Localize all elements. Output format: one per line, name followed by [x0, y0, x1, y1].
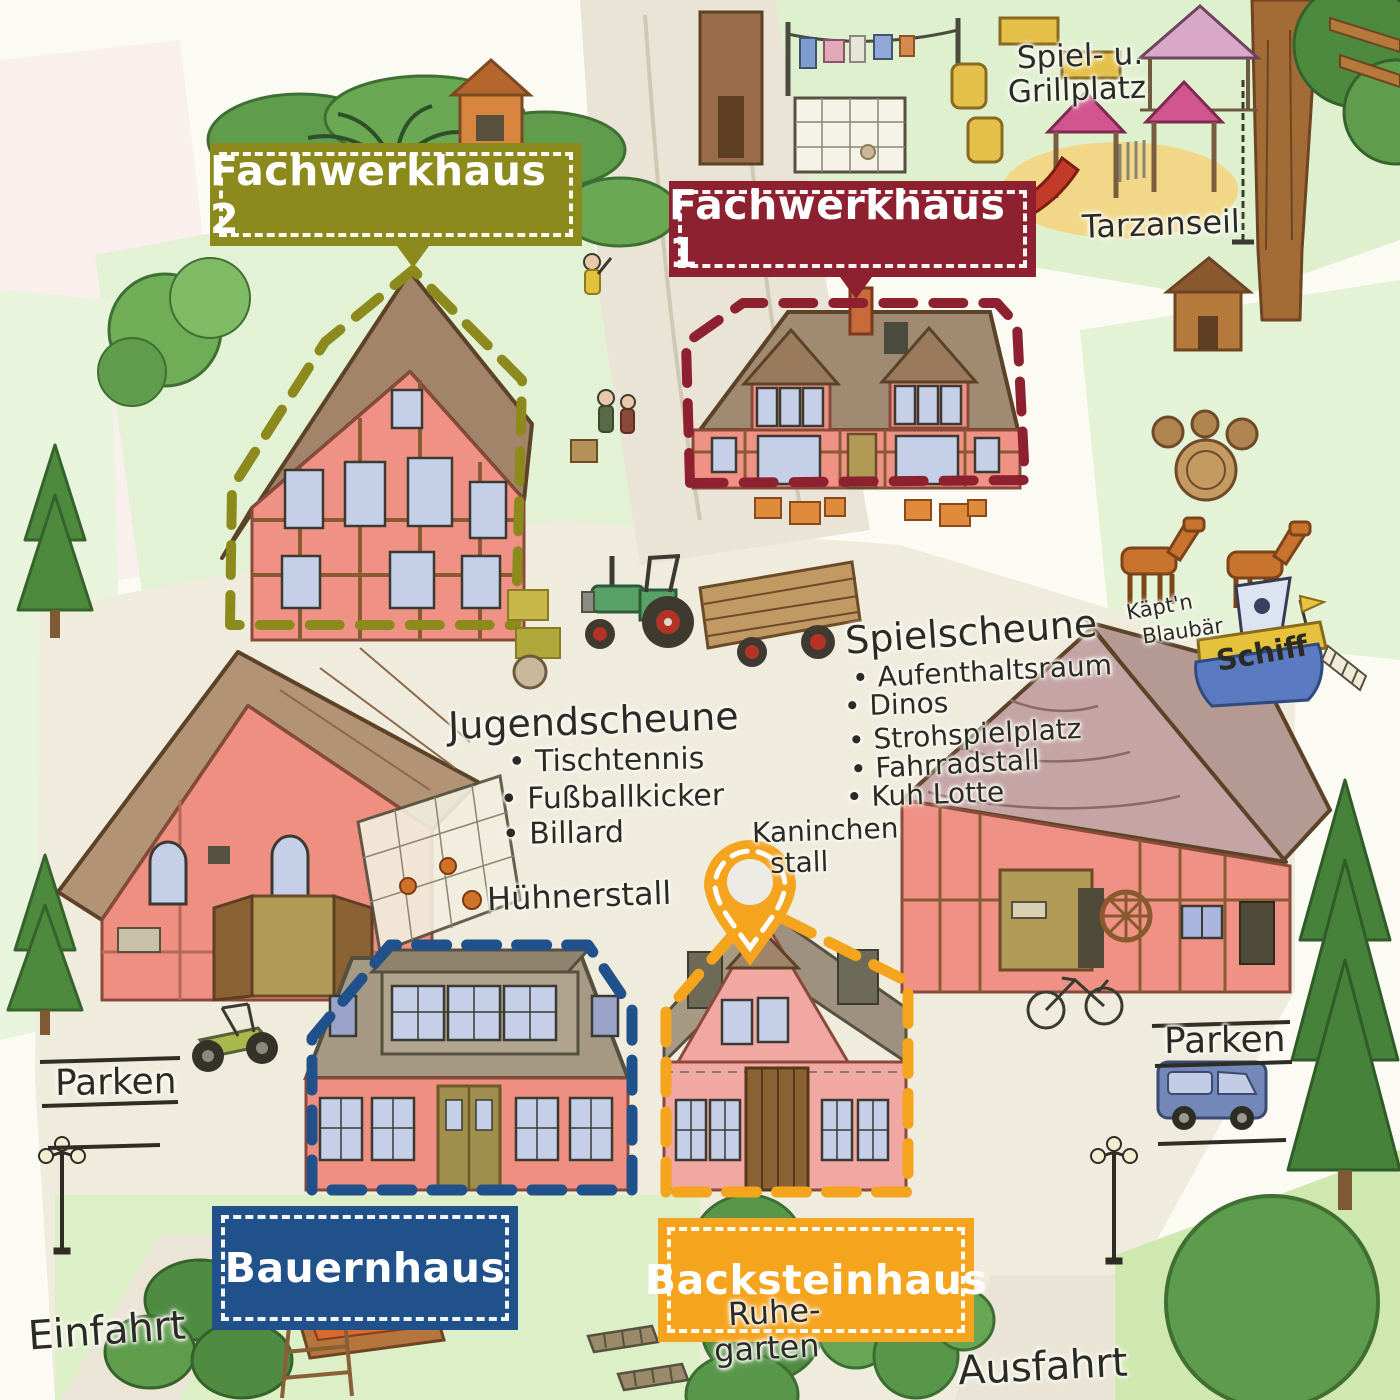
animal-pen	[795, 98, 905, 172]
tag-pointer-fachwerkhaus2	[397, 246, 429, 268]
tag-pointer-fachwerkhaus1	[840, 277, 872, 299]
label-ausfahrt: Ausfahrt	[957, 1342, 1129, 1393]
tree-bottom-right	[1166, 1196, 1378, 1400]
shed	[700, 12, 762, 164]
label-einfahrt: Einfahrt	[27, 1305, 187, 1358]
label-spielscheune-item: Dinos	[844, 688, 949, 721]
label-kaninchenstall-line2: stall	[770, 847, 829, 878]
illustrated-farm-map: Fachwerkhaus 2 Fachwerkhaus 1 Bauernhaus…	[0, 0, 1400, 1400]
tag-bauernhaus[interactable]: Bauernhaus	[212, 1206, 518, 1330]
tag-label: Fachwerkhaus 2	[210, 147, 582, 243]
label-jugendscheune-item: Billard	[502, 817, 625, 851]
label-jugendscheune-title: Jugendscheune	[447, 697, 739, 747]
tag-label: Fachwerkhaus 1	[669, 181, 1036, 277]
tag-fachwerkhaus2[interactable]: Fachwerkhaus 2	[210, 143, 582, 246]
label-jugendscheune-item: Fußballkicker	[500, 780, 725, 815]
tag-label: Bauernhaus	[225, 1244, 506, 1292]
tag-fachwerkhaus1[interactable]: Fachwerkhaus 1	[669, 181, 1036, 277]
label-ruhegarten-line2: garten	[713, 1329, 820, 1368]
label-spielscheune-item: Kuh Lotte	[846, 777, 1005, 812]
label-tarzanseil: Tarzanseil	[1081, 205, 1240, 244]
label-jugendscheune-item: Tischtennis	[508, 743, 705, 778]
label-spielplatz-line2: Grillplatz	[991, 71, 1162, 109]
label-huehnerstall: Hühnerstall	[486, 877, 671, 917]
label-parken-left: Parken	[55, 1063, 177, 1103]
building-bauernhaus	[306, 945, 632, 1190]
label-kaninchenstall-line1: Kaninchen	[752, 813, 899, 847]
wagon-wheel	[1102, 892, 1150, 940]
label-parken-right: Parken	[1164, 1021, 1286, 1061]
